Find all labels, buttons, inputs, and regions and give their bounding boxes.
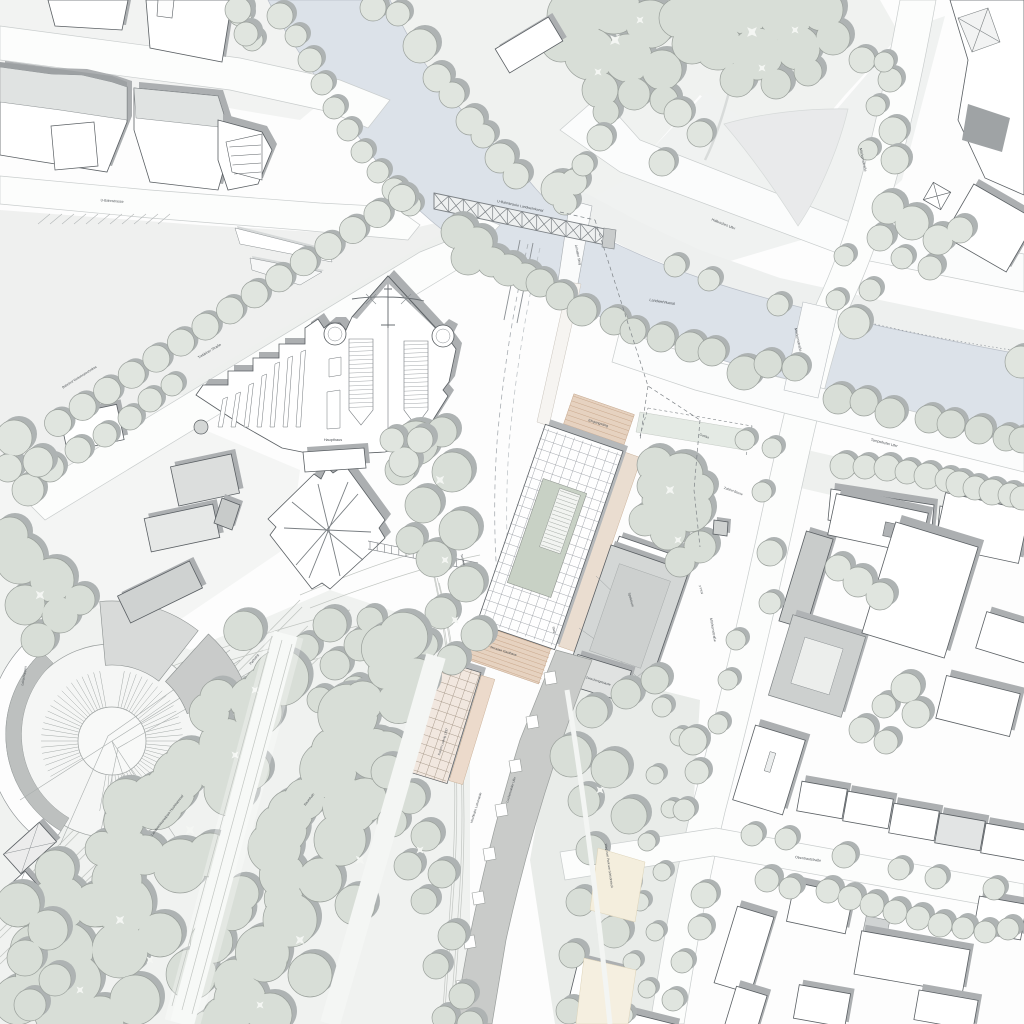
svg-text:Haupthaus: Haupthaus [324, 438, 342, 442]
